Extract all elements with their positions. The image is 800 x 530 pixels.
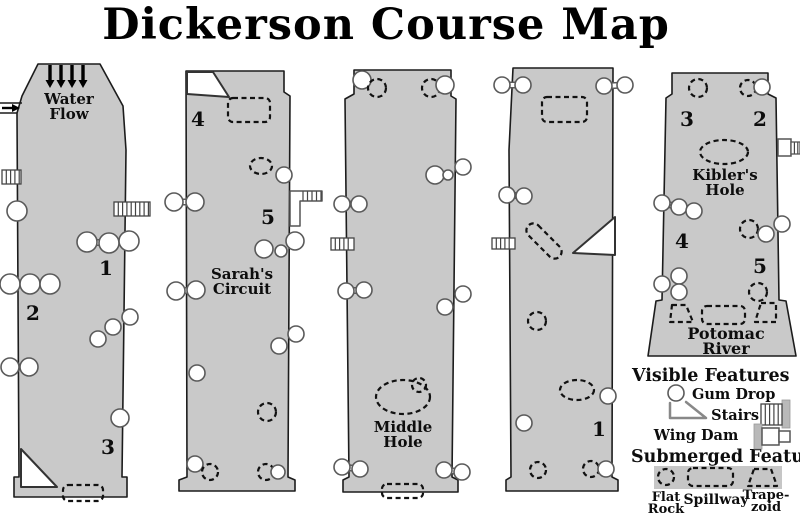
map-label: Flow [49, 105, 89, 123]
gum-drop-icon [774, 216, 790, 232]
course-map-page: WaterFlow12345Sarah'sCircuitMiddleHole13… [0, 0, 800, 530]
stairs-plate [782, 400, 790, 428]
gum-drop-icon [338, 283, 354, 299]
gum-drop-icon [516, 188, 532, 204]
dock-icon [779, 431, 790, 442]
legend-label-gum-drop: Gum Drop [692, 386, 775, 403]
gum-drop-icon [276, 167, 292, 183]
gum-drop-icon [516, 415, 532, 431]
gate-number: 1 [592, 417, 606, 441]
gate-number: 4 [191, 107, 205, 131]
gum-drop-icon [654, 195, 670, 211]
gum-drop-icon [90, 331, 106, 347]
gum-drop-icon [122, 309, 138, 325]
gum-drop-icon [443, 170, 453, 180]
legend: Visible FeaturesSubmerged FeaturesGum Dr… [631, 366, 800, 517]
gum-drop-icon [20, 274, 40, 294]
map-label: River [702, 339, 750, 358]
channel-3: MiddleHole [331, 70, 471, 498]
gum-drop-icon [271, 338, 287, 354]
legend-item-stairs: Stairs [711, 400, 790, 428]
gum-drop-icon [455, 159, 471, 175]
course-map: WaterFlow12345Sarah'sCircuitMiddleHole13… [0, 0, 800, 530]
legend-label-stairs: Stairs [711, 407, 759, 424]
gum-drop-icon [515, 77, 531, 93]
gum-drop-icon [275, 245, 287, 257]
gum-drop-icon [255, 240, 273, 258]
stairs-icon [761, 404, 782, 425]
gum-drop-icon [1, 358, 19, 376]
gum-drop-icon [671, 199, 687, 215]
gum-drop-icon [600, 388, 616, 404]
map-label: Hole [705, 181, 744, 199]
gum-drop-icon [437, 299, 453, 315]
dock-icon [778, 139, 791, 156]
page-title: Dickerson Course Map [0, 0, 772, 50]
wing-dam-icon [670, 402, 706, 418]
gate-number: 5 [753, 254, 767, 278]
gum-drop-icon [426, 166, 444, 184]
gum-drop-icon [286, 232, 304, 250]
gum-drop-icon [668, 385, 684, 401]
gum-drop-icon [167, 282, 185, 300]
channel-5: 32Kibler'sHole45PotomacRiver [648, 73, 800, 358]
gum-drop-icon [40, 274, 60, 294]
legend-item-gum-drop: Gum Drop [668, 385, 775, 403]
gum-drop-icon [334, 459, 350, 475]
dock-plate [754, 424, 762, 449]
gum-drop-icon [186, 193, 204, 211]
gum-drop-icon [334, 196, 350, 212]
gate-number: 1 [99, 256, 113, 280]
gum-drop-icon [455, 286, 471, 302]
gum-drop-icon [105, 319, 121, 335]
gum-drop-icon [596, 78, 612, 94]
gum-drop-icon [671, 284, 687, 300]
dock-icon [791, 142, 800, 154]
gum-drop-icon [654, 276, 670, 292]
gum-drop-icon [436, 76, 454, 94]
gum-drop-icon [352, 461, 368, 477]
gum-drop-icon [189, 365, 205, 381]
gate-number: 3 [101, 435, 115, 459]
dock-icon [762, 428, 779, 445]
legend-submerged-heading: Submerged Features [631, 447, 800, 467]
legend-label-trapezoid: zoid [751, 500, 781, 515]
gate-number: 2 [26, 301, 40, 325]
gum-drop-icon [494, 77, 510, 93]
gum-drop-icon [754, 79, 770, 95]
stairs-icon [2, 170, 21, 184]
gate-number: 4 [675, 229, 689, 253]
gum-drop-icon [288, 326, 304, 342]
gum-drop-icon [351, 196, 367, 212]
gate-number: 2 [753, 107, 767, 131]
stairs-wing-icon [290, 191, 322, 226]
legend-visible-heading: Visible Features [631, 366, 790, 386]
channel-4: 1 [492, 68, 633, 491]
gum-drop-icon [119, 231, 139, 251]
gum-drop-icon [686, 203, 702, 219]
map-label: Hole [383, 433, 422, 451]
gum-drop-icon [758, 226, 774, 242]
gum-drop-icon [271, 465, 285, 479]
gum-drop-icon [0, 274, 20, 294]
legend-label-spillway: Spillway [683, 492, 749, 508]
gum-drop-icon [111, 409, 129, 427]
gum-drop-icon [356, 282, 372, 298]
gum-drop-icon [7, 201, 27, 221]
gum-drop-icon [187, 281, 205, 299]
gum-drop-icon [77, 232, 97, 252]
stairs-icon [492, 238, 515, 249]
gum-drop-icon [436, 462, 452, 478]
channel-1: WaterFlow123 [0, 64, 150, 501]
gum-drop-icon [598, 461, 614, 477]
gate-number: 5 [261, 205, 275, 229]
gum-drop-icon [499, 187, 515, 203]
legend-label-wing-dam: Wing Dam [653, 427, 739, 444]
channel-2: 45Sarah'sCircuit [165, 71, 322, 491]
map-label: Circuit [213, 280, 271, 298]
legend-label-flat-rock: Rock [648, 502, 685, 517]
gate-number: 3 [680, 107, 694, 131]
gum-drop-icon [165, 193, 183, 211]
gum-drop-icon [617, 77, 633, 93]
gum-drop-icon [187, 456, 203, 472]
stairs-icon [331, 238, 354, 250]
gum-drop-icon [20, 358, 38, 376]
gum-drop-icon [671, 268, 687, 284]
gum-drop-icon [99, 233, 119, 253]
gum-drop-icon [454, 464, 470, 480]
